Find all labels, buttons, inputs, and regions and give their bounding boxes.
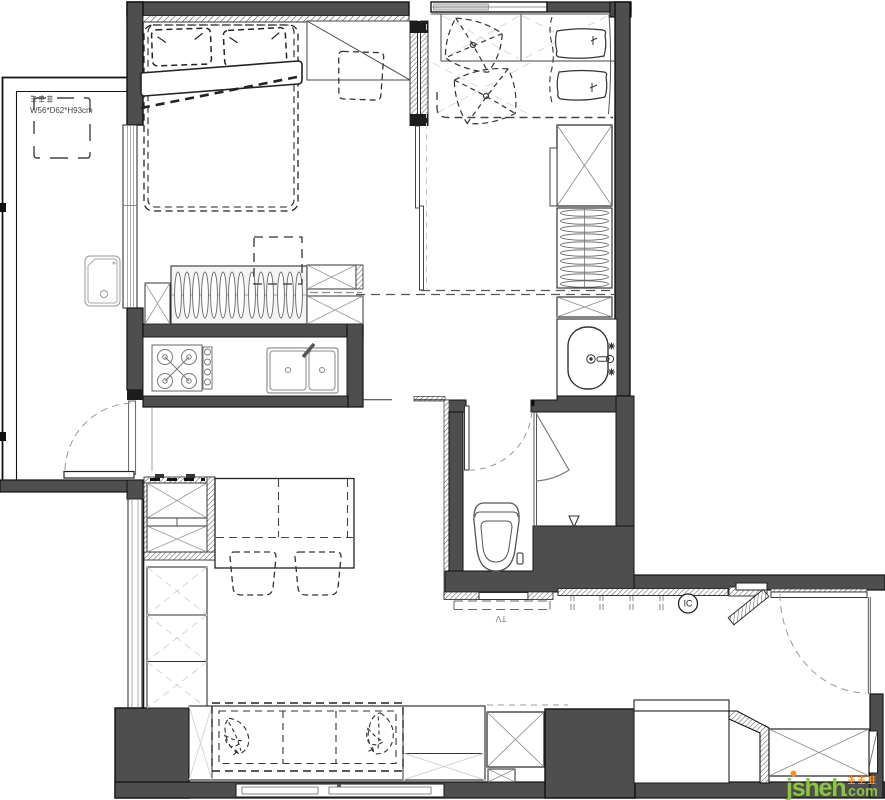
svg-text:.com: .com bbox=[844, 784, 878, 800]
svg-text:IC: IC bbox=[684, 599, 693, 609]
svg-text:W56*D62*H93cm: W56*D62*H93cm bbox=[30, 106, 93, 115]
svg-text:jsheh: jsheh bbox=[785, 774, 845, 800]
svg-text:TV: TV bbox=[495, 614, 506, 624]
